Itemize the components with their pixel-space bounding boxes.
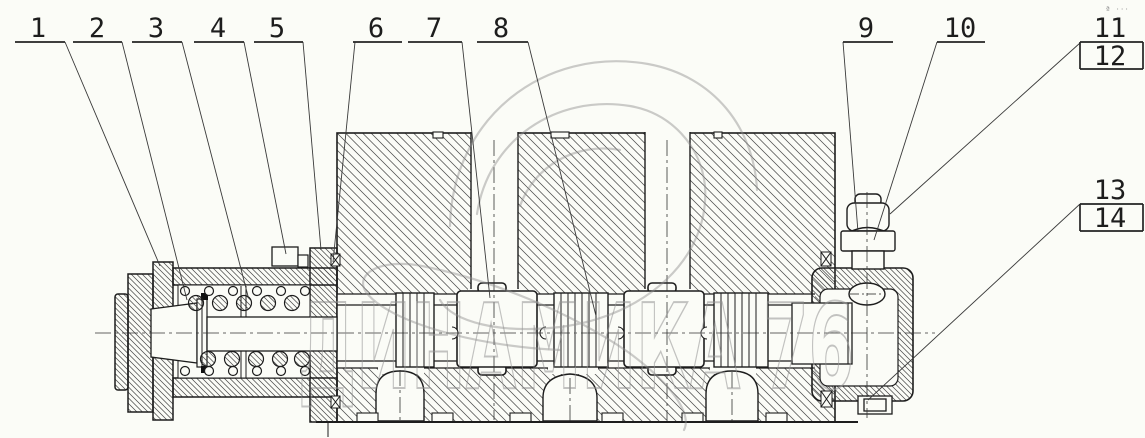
callout-9: 9 (858, 13, 874, 44)
flow-channel-right (645, 132, 690, 296)
callout-10: 10 (944, 13, 977, 44)
relief-bolt (841, 194, 895, 269)
cap-mid (128, 274, 153, 412)
watermark-brand: ДИНАМИКА 76 (298, 278, 854, 416)
drain-plug (858, 396, 892, 414)
callout-12: 12 (1094, 41, 1127, 72)
callout-1: 1 (30, 13, 46, 44)
callout-2: 2 (89, 13, 105, 44)
callout-8: 8 (493, 13, 509, 44)
callout-7: 7 (426, 13, 442, 44)
callout-3: 3 (148, 13, 164, 44)
valve-section-drawing: ДИНАМИКА 76 ª ··· 1 2 3 4 5 6 7 8 9 10 (0, 0, 1145, 438)
callout-14: 14 (1094, 203, 1127, 234)
callout-13: 13 (1094, 175, 1127, 206)
callout-11: 11 (1094, 13, 1127, 44)
callout-5: 5 (269, 13, 285, 44)
technical-drawing-page: ДИНАМИКА 76 ª ··· 1 2 3 4 5 6 7 8 9 10 (0, 0, 1145, 438)
callout-4: 4 (210, 13, 226, 44)
callout-6: 6 (368, 13, 384, 44)
cap-nub (115, 294, 128, 390)
